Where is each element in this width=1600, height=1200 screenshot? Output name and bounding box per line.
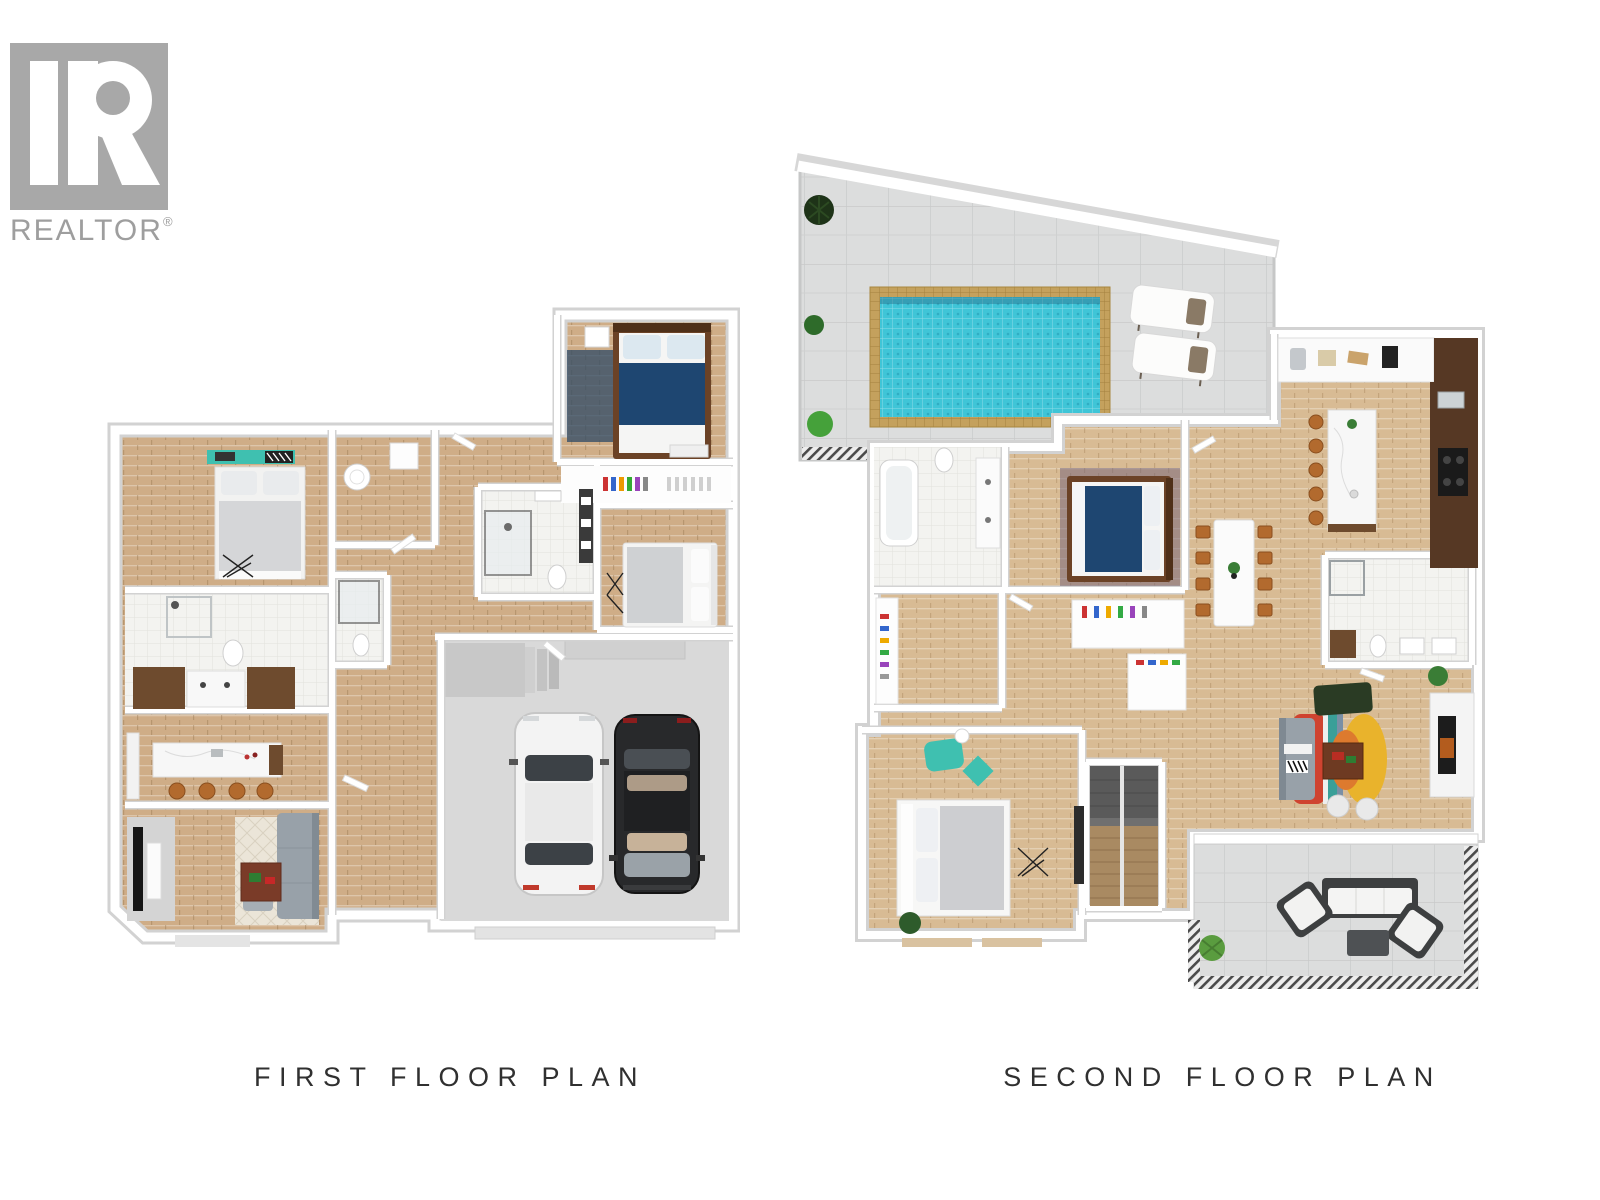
first-floor-label: FIRST FLOOR PLAN xyxy=(200,1062,700,1093)
patio xyxy=(1188,834,1478,989)
toilet-main xyxy=(223,640,243,666)
second-floor-label: SECOND FLOOR PLAN xyxy=(950,1062,1495,1093)
armchair-teal xyxy=(923,738,965,773)
coffee-table-2 xyxy=(1323,743,1363,779)
kitchen-island xyxy=(153,743,281,777)
logo-brand: REALTOR xyxy=(10,214,163,247)
outdoor-table xyxy=(1347,930,1389,956)
patio-railing-left xyxy=(1188,920,1200,982)
bed-double-blue xyxy=(613,323,711,459)
closet-room xyxy=(876,598,898,704)
shower-small xyxy=(339,581,379,623)
bedroom-guest xyxy=(607,543,717,627)
hall-tv xyxy=(1074,806,1084,884)
pool xyxy=(870,287,1110,427)
toilet-small xyxy=(353,634,369,656)
toilet-ensuite xyxy=(1370,635,1386,657)
closet-bedroom-blue xyxy=(1072,600,1184,648)
closet-hall-2 xyxy=(1128,654,1186,710)
storage-box xyxy=(390,443,418,469)
first-floor-plan xyxy=(95,305,740,965)
vanity-upper xyxy=(976,458,1000,548)
plant-living xyxy=(1428,666,1448,686)
bed-blue-2 xyxy=(1067,476,1173,582)
floor-plan-sheet: REALTOR® xyxy=(0,0,1600,1200)
registered-trademark-symbol: ® xyxy=(163,214,173,229)
media-console xyxy=(147,843,161,899)
realtor-logo: REALTOR® xyxy=(10,43,240,248)
pouf-2 xyxy=(1356,798,1378,820)
kitchen-counter-wall xyxy=(127,733,139,799)
fireplace xyxy=(1430,693,1474,797)
garage-entry-landing xyxy=(445,643,525,697)
vanity-left xyxy=(133,667,185,709)
sink-2 xyxy=(1432,638,1456,654)
black-car xyxy=(609,715,705,893)
window-sill xyxy=(982,938,1042,947)
bath-cabinet xyxy=(1330,630,1356,658)
bedroom-blue xyxy=(1060,468,1180,586)
laptop xyxy=(215,452,235,461)
patio-railing-bottom xyxy=(1194,976,1478,989)
kitchen-sink xyxy=(1438,392,1464,408)
nightstand xyxy=(585,327,609,347)
stove xyxy=(1438,448,1468,496)
bedroom-left xyxy=(207,450,305,579)
vanity-right xyxy=(247,667,295,709)
sofa-gray-2 xyxy=(1279,718,1315,800)
sink xyxy=(535,491,561,501)
sink-1 xyxy=(1400,638,1424,654)
realtor-logo-icon xyxy=(10,43,168,210)
garage-shelf xyxy=(565,641,685,659)
garage xyxy=(441,637,729,939)
plant-bedroom xyxy=(899,912,921,934)
bed-bench xyxy=(670,445,708,457)
pouf-1 xyxy=(1327,795,1349,817)
window-sill xyxy=(902,938,972,947)
laundry-basket xyxy=(344,464,370,490)
corner-cabinet xyxy=(1434,338,1478,382)
bed-left xyxy=(215,467,305,579)
side-table xyxy=(955,729,969,743)
front-porch-step xyxy=(175,935,250,947)
garage-door xyxy=(475,927,715,939)
island-sink xyxy=(211,749,223,757)
kitchen-island-2 xyxy=(1328,410,1376,532)
tv xyxy=(133,827,143,911)
realtor-logo-text: REALTOR® xyxy=(10,214,240,248)
pool-water xyxy=(880,297,1100,417)
sofa-green xyxy=(1313,682,1373,716)
second-floor-plan xyxy=(762,148,1486,998)
toilet-upper xyxy=(935,448,953,472)
desk-mat xyxy=(265,451,293,463)
bedroom-master xyxy=(567,323,711,459)
bed-lower xyxy=(897,800,1010,916)
shower xyxy=(485,511,531,575)
white-car xyxy=(509,713,609,895)
coffee-table xyxy=(241,863,281,901)
table-plant xyxy=(1228,562,1240,574)
patio-railing-right xyxy=(1464,846,1478,988)
bedroom-rug xyxy=(567,350,615,442)
toilet xyxy=(548,565,566,589)
vanity-counter xyxy=(187,671,245,707)
bed-guest xyxy=(623,543,717,627)
